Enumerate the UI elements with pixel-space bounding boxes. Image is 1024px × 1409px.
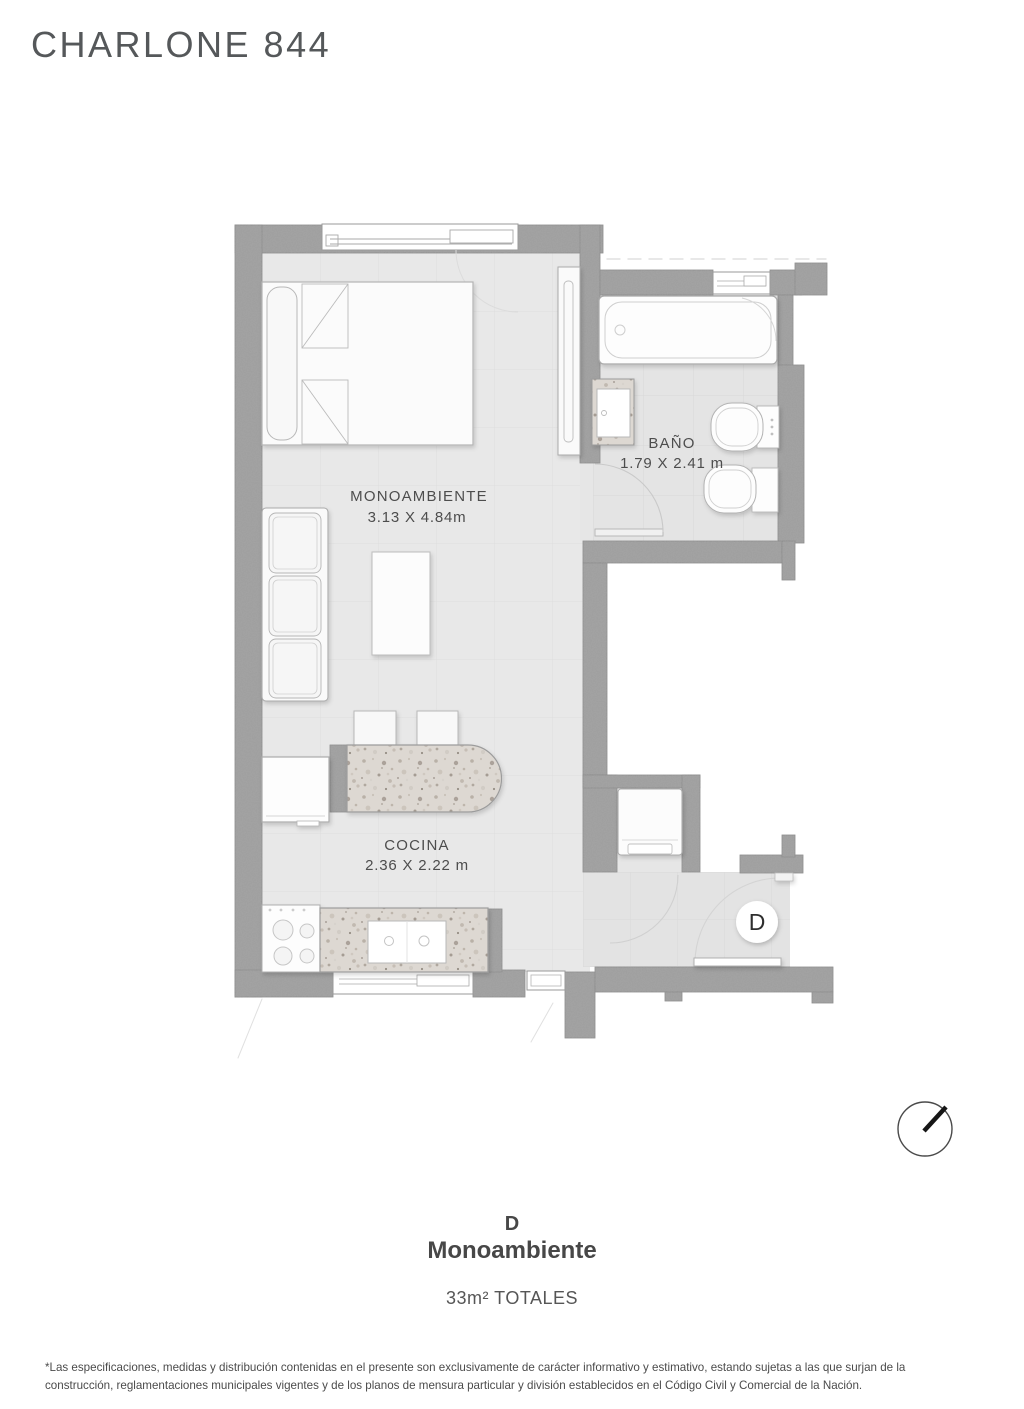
label-bano: BAÑO [648, 435, 695, 452]
unit-marker: D [736, 901, 778, 943]
dims-bano: 1.79 X 2.41 m [620, 455, 724, 472]
bed [262, 282, 473, 445]
projection-line-left [238, 999, 262, 1058]
bidet [704, 465, 778, 513]
wall-pier-below [565, 972, 595, 1038]
wall-bath-corner [795, 263, 827, 295]
washing-machine [618, 789, 682, 855]
wall-counter-end [488, 909, 502, 972]
wall-bath-right-lower [778, 365, 804, 543]
bathroom-window [713, 272, 770, 294]
kitchen-counter [320, 908, 488, 972]
footer-unit-letter: D [0, 1212, 1024, 1236]
bathroom-vanity [592, 379, 634, 445]
coffee-table [372, 552, 430, 655]
label-cocina: COCINA [384, 837, 450, 854]
entry-sliding-door [694, 958, 781, 966]
kitchen-island [347, 745, 502, 812]
stool-2 [417, 711, 458, 748]
wall-corridor-top-right [740, 855, 803, 873]
wall-niche-right [682, 775, 700, 872]
stool-1 [354, 711, 396, 748]
label-monoambiente: MONOAMBIENTE [350, 488, 488, 505]
floor-plan-drawing: MONOAMBIENTE 3.13 X 4.84m BAÑO 1.79 X 2.… [0, 0, 1024, 1409]
wall-niche-left [583, 775, 617, 872]
wall-bath-top-left [600, 270, 713, 295]
plan-footer: D Monoambiente 33m² TOTALES [0, 1212, 1024, 1309]
wall-stub-down-2 [812, 992, 833, 1003]
wall-bath-bottom [583, 541, 782, 563]
fridge [262, 757, 329, 826]
wall-bath-right-upper [778, 295, 793, 365]
wall-stub-down-1 [665, 992, 682, 1001]
kitchen-window [333, 971, 473, 994]
wall-island-stub [330, 745, 347, 812]
floorplan-page: CHARLONE 844 [0, 0, 1024, 1409]
bed-pillow [267, 287, 297, 440]
dims-monoambiente: 3.13 X 4.84m [368, 509, 467, 526]
bathtub [599, 296, 777, 364]
disclaimer-text: *Las especificaciones, medidas y distrib… [45, 1359, 929, 1395]
wall-stub-right-mid [782, 541, 795, 580]
dims-cocina: 2.36 X 2.22 m [365, 857, 469, 874]
small-window [527, 971, 565, 990]
north-arrow-icon [898, 1102, 952, 1156]
wardrobe [558, 267, 580, 455]
bathroom-door-leaf [595, 529, 663, 536]
wall-bottom-mid [473, 970, 525, 997]
wall-corridor-bottom [595, 967, 833, 992]
wall-void-left [583, 563, 607, 775]
footer-total-area: 33m² TOTALES [0, 1288, 1024, 1309]
toilet [711, 403, 779, 451]
sofa [262, 508, 328, 701]
main-window [322, 224, 518, 250]
wall-bottom-left [235, 970, 333, 997]
wall-left [235, 225, 262, 997]
projection-line-right [531, 1003, 553, 1042]
footer-unit-type: Monoambiente [0, 1236, 1024, 1266]
stove [262, 905, 320, 972]
entry-threshold [775, 873, 793, 881]
wall-stub-up-entry [782, 835, 795, 857]
unit-marker-letter: D [749, 909, 766, 935]
